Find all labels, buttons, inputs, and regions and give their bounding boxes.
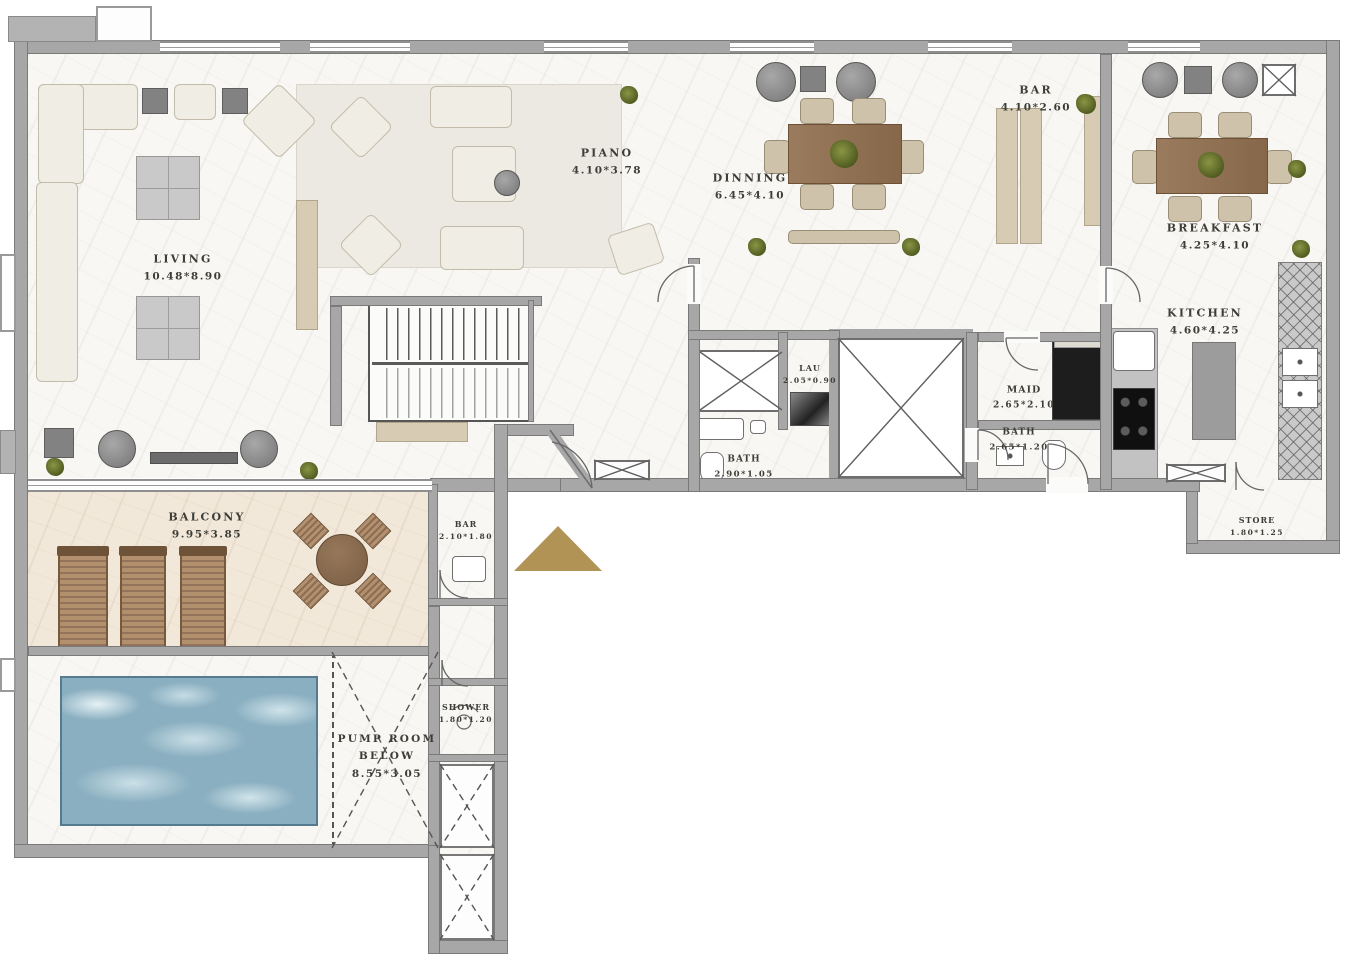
room-name: SHOWER (439, 701, 493, 714)
room-label-balcony: BALCONY 9.95*3.85 (168, 508, 245, 543)
plant (1288, 160, 1306, 178)
room-label-store: STORE 1.80*1.25 (1230, 514, 1284, 540)
kitchen-sink (1282, 348, 1318, 376)
exterior-ledge (0, 430, 16, 474)
wall-segment (428, 484, 438, 606)
room-name: BALCONY (168, 508, 245, 526)
stair-rail (372, 362, 528, 365)
room-dims: 2.65*2.10 (993, 398, 1055, 413)
room-dims: 4.60*4.25 (1167, 322, 1243, 339)
room-label-living: LIVING 10.48*8.90 (144, 250, 223, 285)
tv-console (150, 452, 238, 464)
side-table (142, 88, 168, 114)
washing-machine (790, 392, 836, 426)
room-name: BATH (714, 453, 773, 468)
room-dims: 2.10*1.80 (439, 531, 493, 543)
elevator (1262, 64, 1296, 96)
dining-chair (800, 98, 834, 124)
room-label-bath-guest: BATH 2.90*1.05 (714, 453, 773, 482)
room-name: LAU (783, 362, 837, 375)
wall-segment (428, 598, 508, 606)
room-name: KITCHEN (1167, 304, 1243, 322)
shower-enclosure (698, 350, 784, 412)
side-table (800, 66, 826, 92)
floor-plan: LIVING 10.48*8.90 PIANO 4.10*3.78 DINNIN… (0, 0, 1353, 960)
room-dims: 2.65*1.20 (989, 440, 1048, 454)
floor-drain (750, 420, 766, 434)
exterior-ledge (96, 6, 152, 42)
room-label-pump-room: PUMP ROOM BELOW 8.55*3.05 (321, 731, 453, 783)
room-dims: 9.95*3.85 (168, 526, 245, 543)
window (160, 41, 280, 53)
window (928, 41, 1012, 53)
floor-bar-balcony (436, 492, 494, 600)
window (1128, 41, 1200, 53)
stair-run-lower (386, 368, 528, 418)
side-table (222, 88, 248, 114)
bar-sink (452, 556, 486, 582)
room-dims: 8.55*3.05 (321, 766, 453, 783)
wall-segment (28, 646, 436, 656)
wall-segment (428, 678, 508, 686)
sunbed (120, 548, 166, 654)
sofa (38, 84, 84, 184)
sofa (36, 182, 78, 382)
room-name: BATH (989, 426, 1048, 441)
outdoor-table (316, 534, 368, 586)
staircase (368, 304, 532, 422)
side-table (1184, 66, 1212, 94)
cooktop (1113, 388, 1155, 450)
window (544, 41, 628, 53)
door-threshold (1166, 464, 1226, 482)
window (730, 41, 814, 53)
room-dims: 2.90*1.05 (714, 467, 773, 481)
sunbed-headrest (179, 546, 227, 556)
dining-chair (800, 184, 834, 210)
room-label-piano: PIANO 4.10*3.78 (572, 144, 642, 179)
room-dims: 6.45*4.10 (713, 187, 788, 204)
coffee-table (136, 296, 200, 360)
dining-chair (1218, 112, 1252, 138)
stair-run-upper (386, 308, 528, 360)
plant (748, 238, 766, 256)
lounge-chair (1142, 62, 1178, 98)
wall-segment (1326, 40, 1340, 554)
sunbed (180, 548, 226, 654)
wall-segment (494, 424, 508, 954)
lounge-chair (756, 62, 796, 102)
plant-centerpiece (830, 140, 858, 168)
exterior-ledge (0, 254, 16, 332)
dining-chair (1132, 150, 1158, 184)
bath-vanity (696, 418, 744, 440)
room-dims: 4.10*2.60 (1001, 99, 1071, 116)
lounge-chair (836, 62, 876, 102)
window-wall-balcony (28, 479, 432, 492)
room-dims: 1.80*1.20 (439, 714, 493, 726)
stair-landing (376, 422, 468, 442)
room-dims: 4.10*3.78 (572, 162, 642, 179)
wall-segment (1186, 540, 1340, 554)
room-name: BREAKFAST (1167, 219, 1264, 237)
room-label-bar-balcony: BAR 2.10*1.80 (439, 518, 493, 544)
room-dims: 10.48*8.90 (144, 268, 223, 285)
room-name: STORE (1230, 514, 1284, 527)
wall-segment (330, 306, 342, 426)
elevator-shaft (838, 338, 964, 478)
room-dims: 4.25*4.10 (1167, 237, 1264, 254)
sofa (440, 226, 524, 270)
wall-segment (528, 300, 534, 422)
lounge-chair (1222, 62, 1258, 98)
room-name: PIANO (572, 144, 642, 162)
room-name: MAID (993, 383, 1055, 399)
dining-chair (852, 98, 886, 124)
room-name: BAR (439, 518, 493, 531)
armchair (174, 84, 216, 120)
sunbed-headrest (119, 546, 167, 556)
wall-segment (428, 844, 440, 954)
fridge (1113, 331, 1155, 371)
wall-segment (688, 330, 840, 340)
dining-chair (1168, 196, 1202, 222)
kitchen-island (1192, 342, 1236, 440)
wall-segment (428, 940, 508, 954)
dining-chair (1218, 196, 1252, 222)
kitchen-sink (1282, 380, 1318, 408)
plant (300, 462, 318, 480)
room-label-bar: BAR 4.10*2.60 (1001, 81, 1071, 116)
wall-segment (1100, 54, 1112, 490)
sunbed-headrest (57, 546, 109, 556)
room-dims: 1.80*1.25 (1230, 527, 1284, 539)
dining-chair (1168, 112, 1202, 138)
wall-segment (966, 332, 978, 490)
window (310, 41, 410, 53)
room-label-kitchen: KITCHEN 4.60*4.25 (1167, 304, 1243, 339)
coffee-table (136, 156, 200, 220)
entrance-arrow-icon (514, 526, 602, 571)
lounge-chair (98, 430, 136, 468)
wall-segment (14, 40, 28, 858)
exterior-ledge (8, 16, 96, 42)
side-table (44, 428, 74, 458)
plant (902, 238, 920, 256)
sofa (430, 86, 512, 128)
room-dims: 2.05*0.90 (783, 375, 837, 387)
bar-counter (1020, 108, 1042, 244)
plant-centerpiece (1198, 152, 1224, 178)
sunbed (58, 548, 108, 654)
room-name: PUMP ROOM BELOW (321, 731, 453, 766)
plant (1292, 240, 1310, 258)
plant (620, 86, 638, 104)
room-label-shower: SHOWER 1.80*1.20 (439, 701, 493, 727)
room-name: BAR (1001, 81, 1071, 99)
room-label-lau: LAU 2.05*0.90 (783, 362, 837, 388)
wall-segment (978, 332, 1110, 342)
room-label-dinning: DINNING 6.45*4.10 (713, 169, 788, 204)
wall-segment (14, 844, 438, 858)
shaft-box (440, 854, 494, 940)
exterior-ledge (0, 658, 16, 692)
room-name: LIVING (144, 250, 223, 268)
wall-segment (1186, 486, 1198, 544)
room-label-bath-maid: BATH 2.65*1.20 (989, 426, 1048, 455)
wall-segment (688, 258, 700, 492)
door-threshold (594, 460, 650, 480)
bar-counter (996, 108, 1018, 244)
room-label-maid: MAID 2.65*2.10 (993, 383, 1055, 414)
dining-chair (852, 184, 886, 210)
console (788, 230, 900, 244)
room-label-breakfast: BREAKFAST 4.25*4.10 (1167, 219, 1264, 254)
plant (46, 458, 64, 476)
room-name: DINNING (713, 169, 788, 187)
lounge-chair (240, 430, 278, 468)
cabinet (296, 200, 318, 330)
plant (1076, 94, 1096, 114)
swimming-pool (60, 676, 318, 826)
side-table (494, 170, 520, 196)
wall-segment (330, 296, 542, 306)
